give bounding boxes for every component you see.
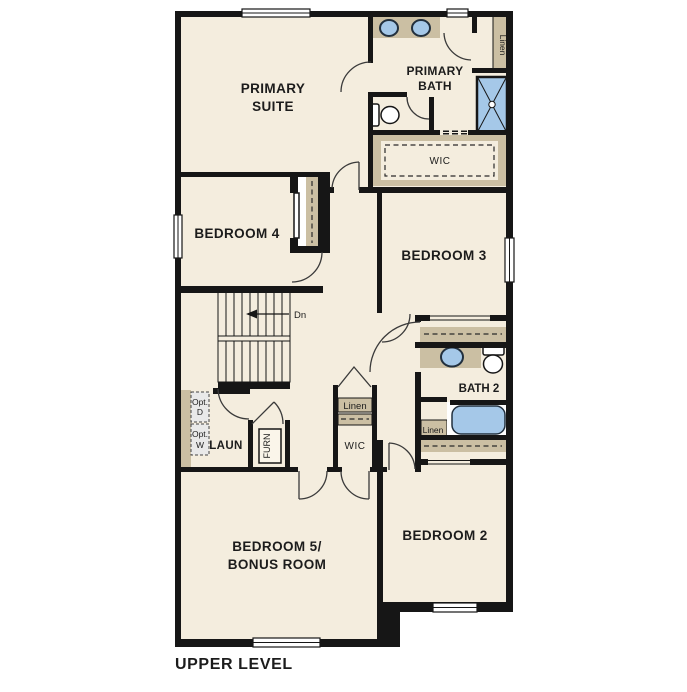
room-label-primary-suite-line1: PRIMARY <box>241 81 306 96</box>
label-furnace: FURN <box>262 434 272 459</box>
outer-wall-left <box>175 11 181 647</box>
label-opt-washer-line1: Opt. <box>192 429 208 439</box>
outer-wall-right <box>506 11 513 612</box>
outer-wall-step-block <box>377 602 400 647</box>
room-label-primary-bath-line2: BATH <box>418 79 452 93</box>
label-opt-dryer-line1: Opt. <box>192 397 208 407</box>
label-opt-dryer-line2: D <box>197 407 203 417</box>
room-label-primary-bath-line1: PRIMARY <box>407 64 464 78</box>
laundry-wall-strip <box>181 390 191 470</box>
stair-label-dn: Dn <box>294 310 306 321</box>
label-opt-washer-line2: W <box>196 440 204 450</box>
bath2-toilet-bowl <box>484 355 503 373</box>
primary-toilet-bowl <box>381 107 399 124</box>
room-label-bedroom5-line1: BEDROOM 5/ <box>232 539 322 554</box>
room-label-primary-suite-line2: SUITE <box>252 99 294 114</box>
plan-title: UPPER LEVEL <box>175 656 293 673</box>
floorplan-page: PRIMARY SUITE PRIMARY BATH Linen WIC BED… <box>0 0 687 687</box>
primary-sink-right <box>412 20 430 36</box>
bath2-sink <box>441 348 463 367</box>
closet-label-hall-linen: Linen <box>343 401 366 412</box>
room-label-bedroom5-line2: BONUS ROOM <box>228 557 327 572</box>
room-label-laundry: LAUN <box>209 440 243 452</box>
closet-label-hall-wic: WIC <box>345 441 366 452</box>
floorplan-svg: PRIMARY SUITE PRIMARY BATH Linen WIC BED… <box>0 0 687 687</box>
closet-label-primary-wic: WIC <box>430 156 451 167</box>
bath2-tub <box>452 406 505 434</box>
primary-sink-left <box>380 20 398 36</box>
exterior-notch <box>400 612 506 639</box>
room-label-bedroom3: BEDROOM 3 <box>401 248 486 263</box>
closet-label-primary-linen: Linen <box>498 35 508 56</box>
closet-label-bath2-linen: Linen <box>423 425 444 435</box>
room-label-bedroom2: BEDROOM 2 <box>402 528 487 543</box>
room-label-bath2: BATH 2 <box>459 383 500 395</box>
bedroom4-closet-door-panel <box>294 193 299 238</box>
room-label-bedroom4: BEDROOM 4 <box>194 226 279 241</box>
primary-shower <box>477 77 507 132</box>
